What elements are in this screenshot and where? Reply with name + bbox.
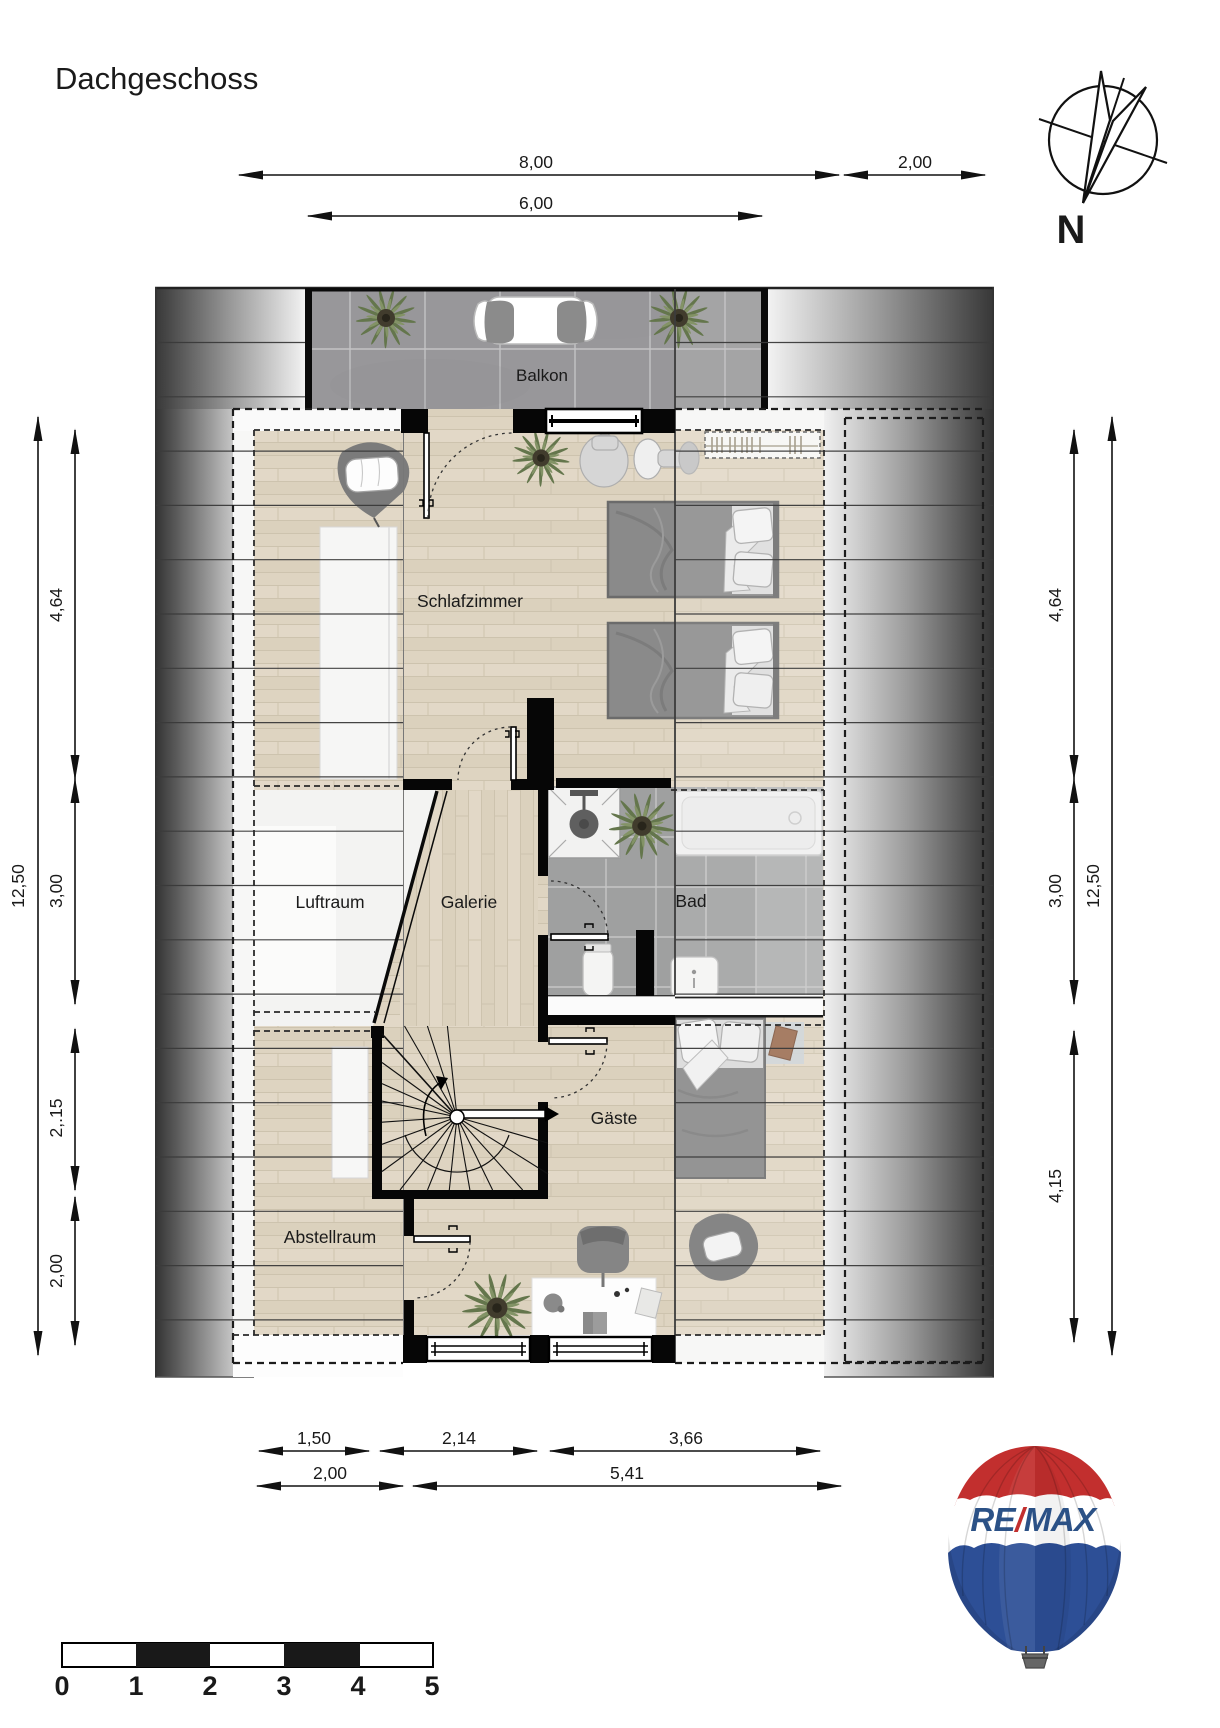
svg-text:12,50: 12,50 xyxy=(8,864,28,908)
svg-text:5: 5 xyxy=(424,1671,439,1701)
svg-text:3: 3 xyxy=(276,1671,291,1701)
svg-text:4,64: 4,64 xyxy=(46,588,66,622)
svg-text:Abstellraum: Abstellraum xyxy=(284,1227,376,1247)
svg-text:Balkon: Balkon xyxy=(516,366,568,385)
svg-text:N: N xyxy=(1057,208,1086,252)
svg-text:1: 1 xyxy=(128,1671,143,1701)
svg-text:Galerie: Galerie xyxy=(441,892,497,912)
svg-text:Dachgeschoss: Dachgeschoss xyxy=(55,61,258,96)
svg-text:2,00: 2,00 xyxy=(313,1463,347,1483)
svg-text:12,50: 12,50 xyxy=(1083,864,1103,908)
svg-text:0: 0 xyxy=(54,1671,69,1701)
svg-text:4,64: 4,64 xyxy=(1045,588,1065,622)
svg-text:4: 4 xyxy=(350,1671,365,1701)
svg-text:6,00: 6,00 xyxy=(519,193,553,213)
svg-text:Luftraum: Luftraum xyxy=(295,892,364,912)
svg-text:2,14: 2,14 xyxy=(442,1428,476,1448)
svg-text:5,41: 5,41 xyxy=(610,1463,644,1483)
svg-text:Schlafzimmer: Schlafzimmer xyxy=(417,591,523,611)
svg-text:3,00: 3,00 xyxy=(46,874,66,908)
svg-text:2,00: 2,00 xyxy=(46,1254,66,1288)
svg-text:4,15: 4,15 xyxy=(1045,1169,1065,1203)
svg-text:RE/MAX: RE/MAX xyxy=(970,1501,1098,1538)
svg-text:2,00: 2,00 xyxy=(898,152,932,172)
svg-text:3,66: 3,66 xyxy=(669,1428,703,1448)
svg-text:Gäste: Gäste xyxy=(591,1108,638,1128)
svg-text:8,00: 8,00 xyxy=(519,152,553,172)
svg-text:1,50: 1,50 xyxy=(297,1428,331,1448)
svg-text:Bad: Bad xyxy=(675,891,706,911)
svg-text:2: 2 xyxy=(202,1671,217,1701)
svg-text:2,.15: 2,.15 xyxy=(46,1099,66,1138)
svg-text:3,00: 3,00 xyxy=(1045,874,1065,908)
